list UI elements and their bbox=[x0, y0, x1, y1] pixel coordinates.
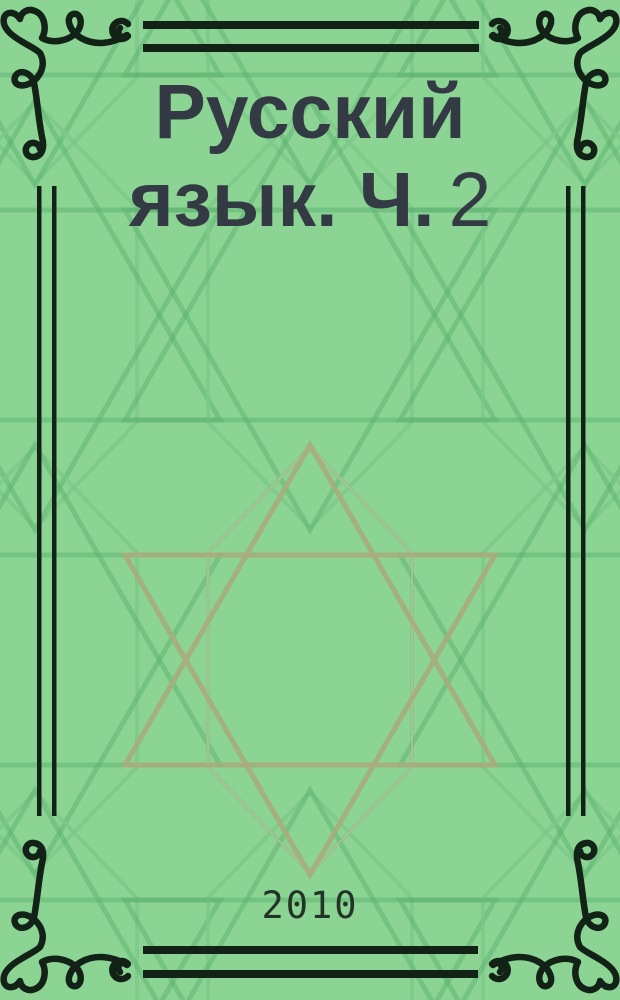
cover-title: Русский язык. Ч.2 bbox=[0, 68, 620, 244]
cover-title-line2: язык. Ч.2 bbox=[0, 156, 620, 244]
cover-year: 2010 bbox=[0, 884, 620, 927]
cover-title-part-number: 2 bbox=[448, 157, 491, 243]
center-star-motif bbox=[125, 445, 495, 875]
cover-title-line2-main: язык. Ч. bbox=[129, 157, 435, 243]
cover-title-line1: Русский bbox=[0, 68, 620, 156]
book-cover: Русский язык. Ч.2 2010 bbox=[0, 0, 620, 1000]
